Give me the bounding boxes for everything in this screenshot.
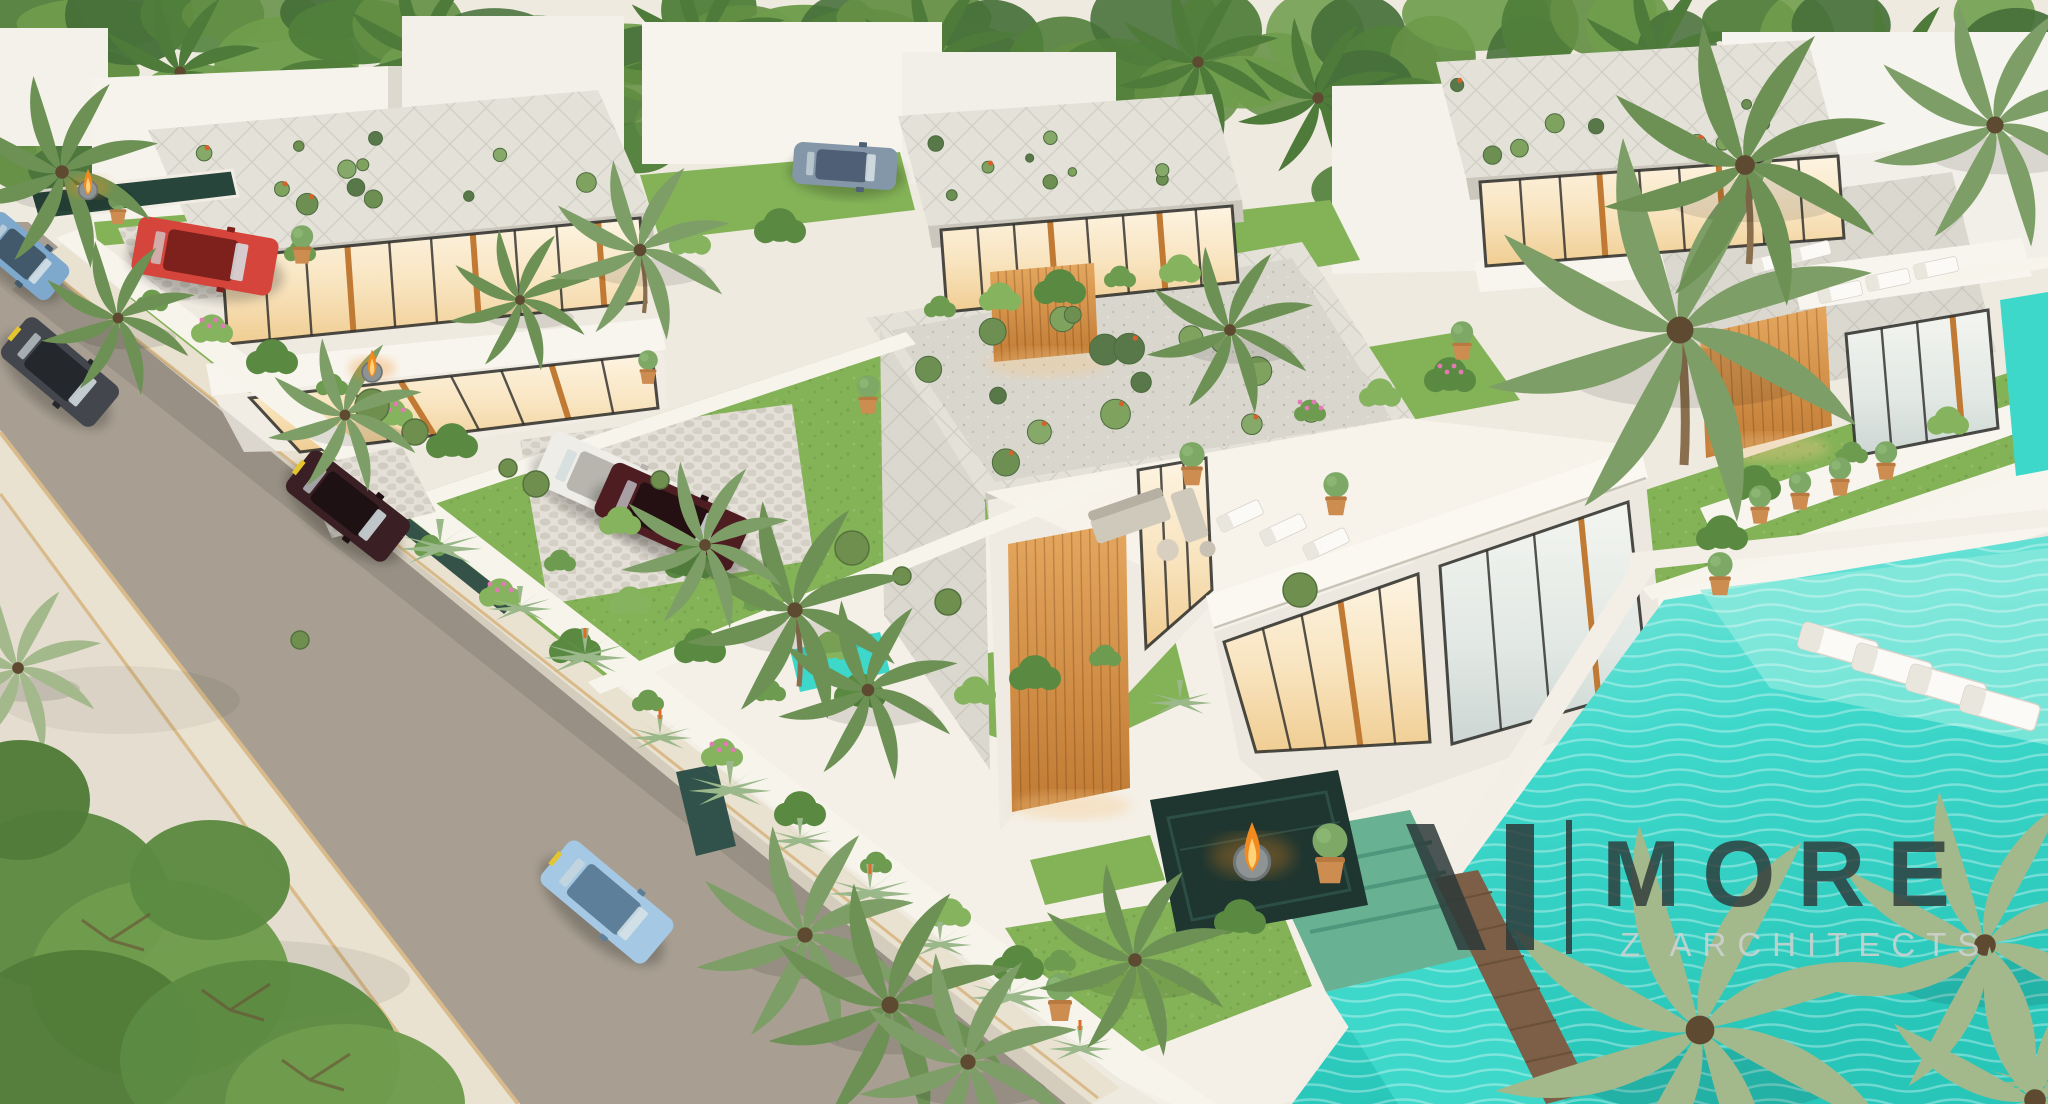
logo-divider (1566, 820, 1572, 954)
logo-wordmark: MORE (1602, 821, 1972, 926)
architectural-rendering: MORE Z ARCHITECTS (0, 0, 2048, 1104)
logo-subtitle: Z ARCHITECTS (1620, 926, 1990, 963)
logo-mark-vertical (1506, 824, 1534, 950)
